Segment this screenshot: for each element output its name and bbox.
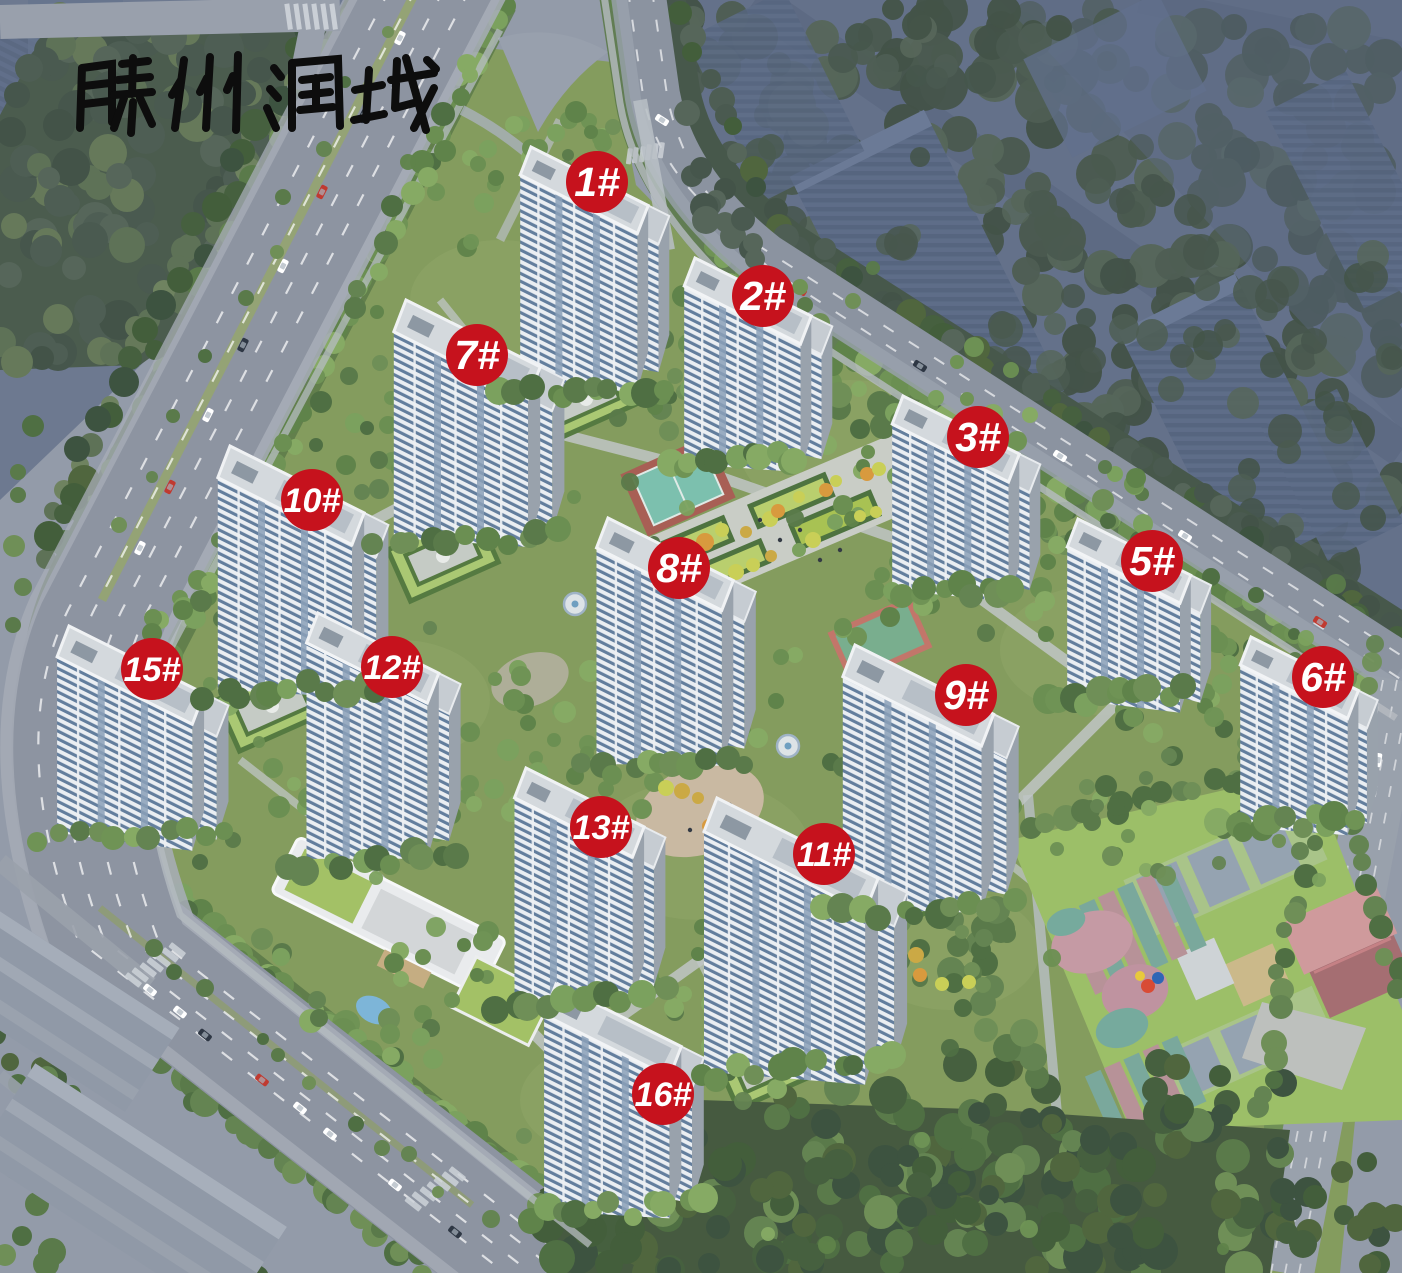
- svg-text:9#: 9#: [943, 672, 989, 718]
- svg-text:2#: 2#: [739, 273, 786, 319]
- svg-text:3#: 3#: [955, 414, 1001, 460]
- svg-text:11#: 11#: [797, 836, 851, 874]
- svg-text:7#: 7#: [454, 332, 500, 378]
- svg-text:8#: 8#: [656, 545, 702, 591]
- svg-text:1#: 1#: [574, 159, 620, 205]
- svg-text:16#: 16#: [635, 1076, 692, 1114]
- svg-text:13#: 13#: [573, 809, 630, 847]
- svg-text:10#: 10#: [284, 482, 341, 520]
- svg-text:12#: 12#: [364, 649, 421, 687]
- svg-text:6#: 6#: [1300, 654, 1346, 700]
- svg-text:5#: 5#: [1129, 538, 1175, 584]
- svg-text:15#: 15#: [124, 651, 181, 689]
